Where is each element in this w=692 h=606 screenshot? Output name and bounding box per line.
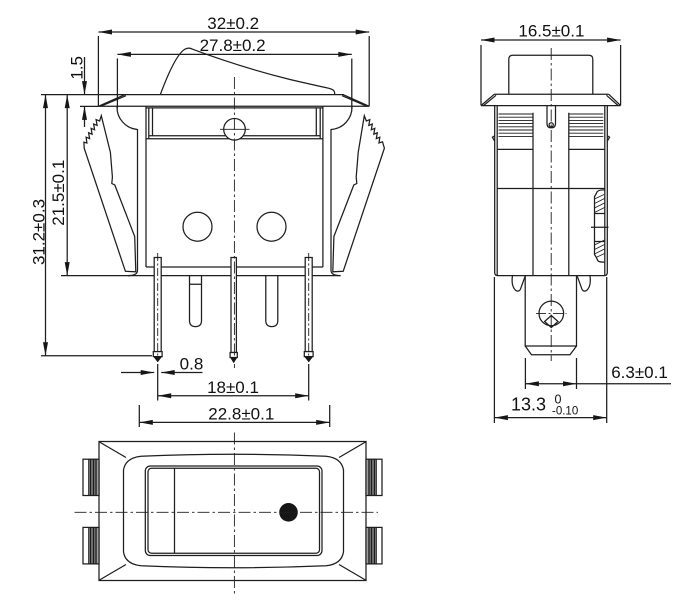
- svg-text:6.3±0.1: 6.3±0.1: [611, 363, 668, 382]
- svg-text:18±0.1: 18±0.1: [207, 378, 259, 397]
- svg-text:27.8±0.2: 27.8±0.2: [200, 36, 266, 55]
- svg-text:0.8: 0.8: [180, 355, 204, 374]
- svg-text:32±0.2: 32±0.2: [207, 14, 259, 33]
- svg-text:21.5±0.1: 21.5±0.1: [49, 160, 68, 226]
- svg-text:13.3: 13.3: [511, 395, 546, 415]
- svg-text:-0.10: -0.10: [552, 405, 578, 417]
- svg-text:16.5±0.1: 16.5±0.1: [518, 22, 584, 41]
- svg-text:22.8±0.1: 22.8±0.1: [208, 405, 274, 424]
- svg-text:1.5: 1.5: [68, 56, 87, 80]
- svg-text:31.2±0.3: 31.2±0.3: [30, 199, 49, 265]
